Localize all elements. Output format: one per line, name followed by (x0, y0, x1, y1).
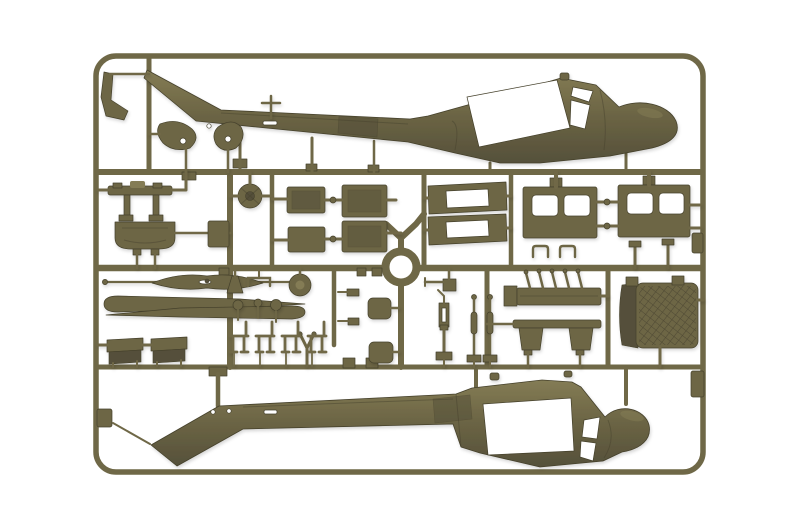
rotor-head-assembly (98, 172, 186, 221)
door-hinge-bracket-1 (533, 246, 548, 257)
upper-engine-panel (338, 116, 378, 137)
wheel-disc (289, 268, 311, 296)
crew-seat-frame-3 (282, 322, 300, 366)
center-ring (386, 252, 417, 283)
cargo-door-2-window-a (627, 193, 653, 214)
antenna-arm (425, 268, 456, 291)
row2-left-parts (98, 172, 272, 268)
rotor-hub-disc (230, 172, 272, 208)
clamp-parts (338, 289, 359, 325)
pilot-door-1-window (446, 189, 489, 208)
bench-seat-2 (151, 337, 187, 366)
door-hinge-bracket-2 (560, 246, 575, 257)
roof-nub (490, 373, 499, 380)
stabilizer-bar (102, 275, 307, 289)
sprue-illustration: Olive drab injection-moulded plastic mod… (0, 0, 800, 530)
cargo-door-1-window-b (564, 195, 590, 216)
lower-cabin-opening (483, 398, 574, 455)
tail-skid-part (101, 72, 128, 120)
row3-right-parts (436, 269, 703, 367)
bench-seat-1 (107, 338, 143, 367)
stabilizer-paddle-left (158, 121, 196, 149)
tie-rod-1 (467, 295, 481, 368)
shock-strut (436, 290, 452, 367)
lower-fuselage-body (151, 380, 649, 467)
cargo-door-1-window-a (532, 195, 558, 216)
crew-seat-frame-4 (308, 322, 326, 366)
cabin-panels (272, 185, 401, 252)
roof-nub (564, 371, 572, 377)
cabin-panel-3 (288, 227, 325, 252)
sprue-photo: Olive drab injection-moulded plastic mod… (0, 0, 800, 530)
roof-nub (560, 73, 569, 80)
floor-panel (208, 221, 229, 247)
rounded-plate-1 (368, 298, 391, 319)
boom-hole (211, 410, 215, 414)
lower-windshield-window (582, 417, 600, 439)
boom-hole (207, 124, 211, 128)
mesh-texture (639, 286, 696, 345)
engine-tray (504, 269, 608, 306)
paddle-hole (225, 136, 231, 142)
pilot-door-2-window (446, 220, 489, 238)
lower-door-window (580, 441, 596, 461)
cargo-door-2-window-b (659, 193, 684, 214)
boom-hole (227, 409, 231, 413)
bench-frame (487, 320, 601, 367)
boom-slot (264, 410, 277, 414)
engine-intake-mesh-screen (620, 276, 704, 367)
crew-seat-frame-2 (256, 322, 274, 366)
rounded-plate-2 (369, 342, 393, 363)
paddle-hole (180, 138, 186, 144)
lower-fuselage-half (151, 371, 649, 467)
boom-slot (263, 121, 277, 125)
